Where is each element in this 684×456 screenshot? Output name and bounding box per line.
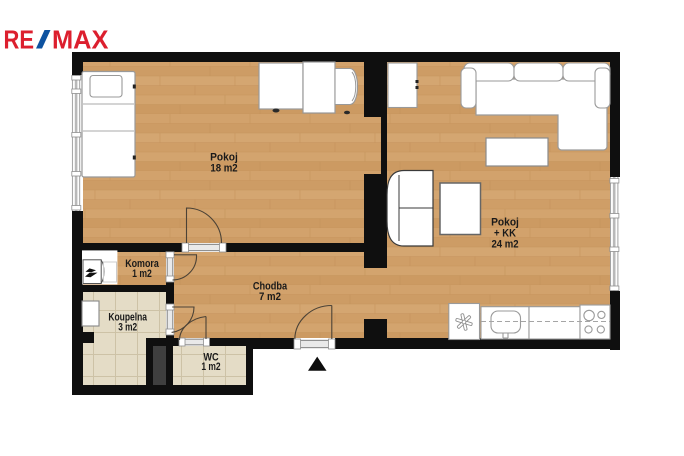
svg-text:MAX: MAX xyxy=(52,27,109,55)
svg-text:RE: RE xyxy=(4,27,35,55)
svg-text:1 m2: 1 m2 xyxy=(132,268,152,280)
svg-text:3 m2: 3 m2 xyxy=(118,322,137,334)
svg-text:7 m2: 7 m2 xyxy=(259,291,281,303)
svg-text:18 m2: 18 m2 xyxy=(210,163,237,175)
svg-text:24 m2: 24 m2 xyxy=(491,239,518,251)
svg-text:1 m2: 1 m2 xyxy=(201,361,220,373)
